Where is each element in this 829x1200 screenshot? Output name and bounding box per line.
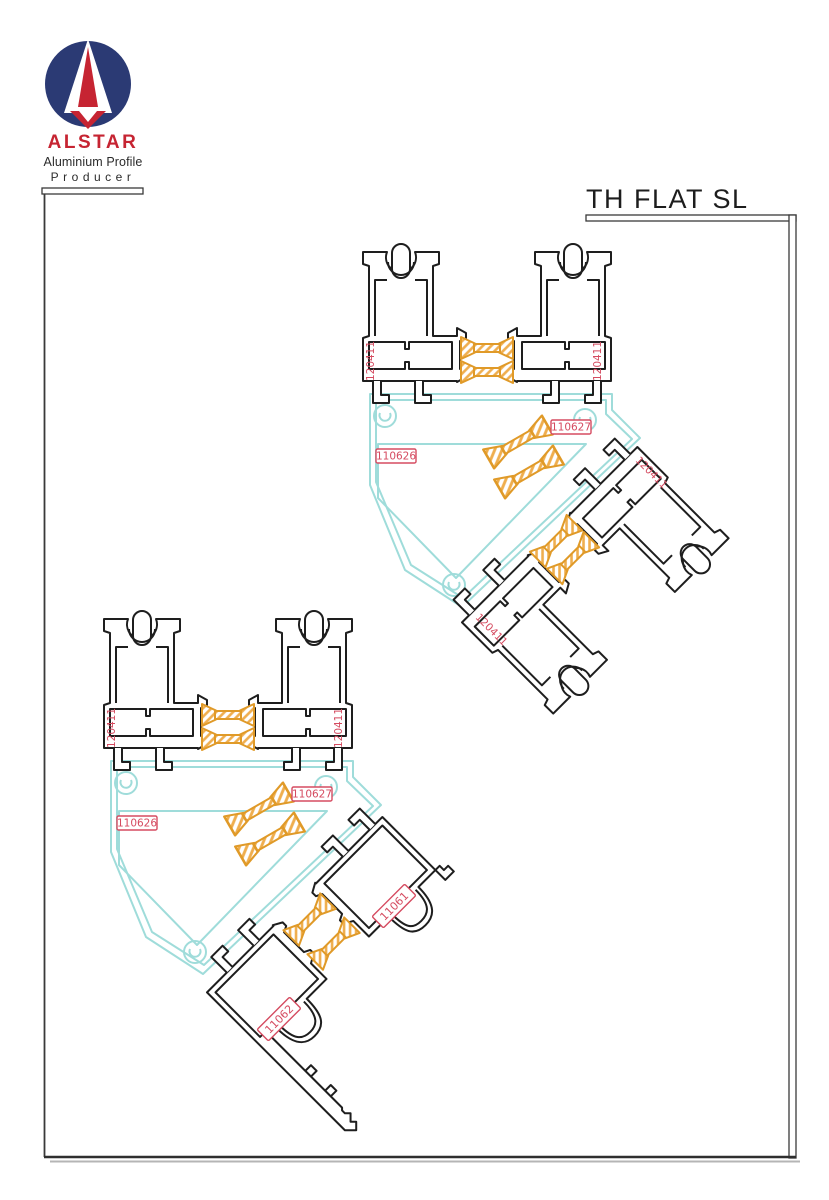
profile-label-thermal-break: 110627 bbox=[292, 789, 332, 801]
profile-label-adapter: 110626 bbox=[376, 451, 416, 463]
profile-label-frame-right: 120411 bbox=[333, 708, 345, 748]
upper-sash-pair-diagonal bbox=[446, 431, 734, 719]
profile-label-frame-left: 120411 bbox=[365, 341, 377, 381]
profile-label-adapter: 110626 bbox=[117, 818, 157, 830]
profile-label-thermal-break: 110627 bbox=[551, 422, 591, 434]
technical-drawing-canvas: 120411 120411 110626 110627 120411 12041… bbox=[0, 0, 829, 1200]
title-underline-bar bbox=[586, 215, 796, 221]
border-right bbox=[789, 215, 796, 1158]
logo-underline-bar bbox=[42, 188, 143, 194]
drawing-sheet: ALSTAR Aluminium Profile Producer TH FLA… bbox=[0, 0, 829, 1200]
profile-label-frame-left: 120411 bbox=[106, 708, 118, 748]
profile-label-frame-right: 120411 bbox=[592, 341, 604, 381]
